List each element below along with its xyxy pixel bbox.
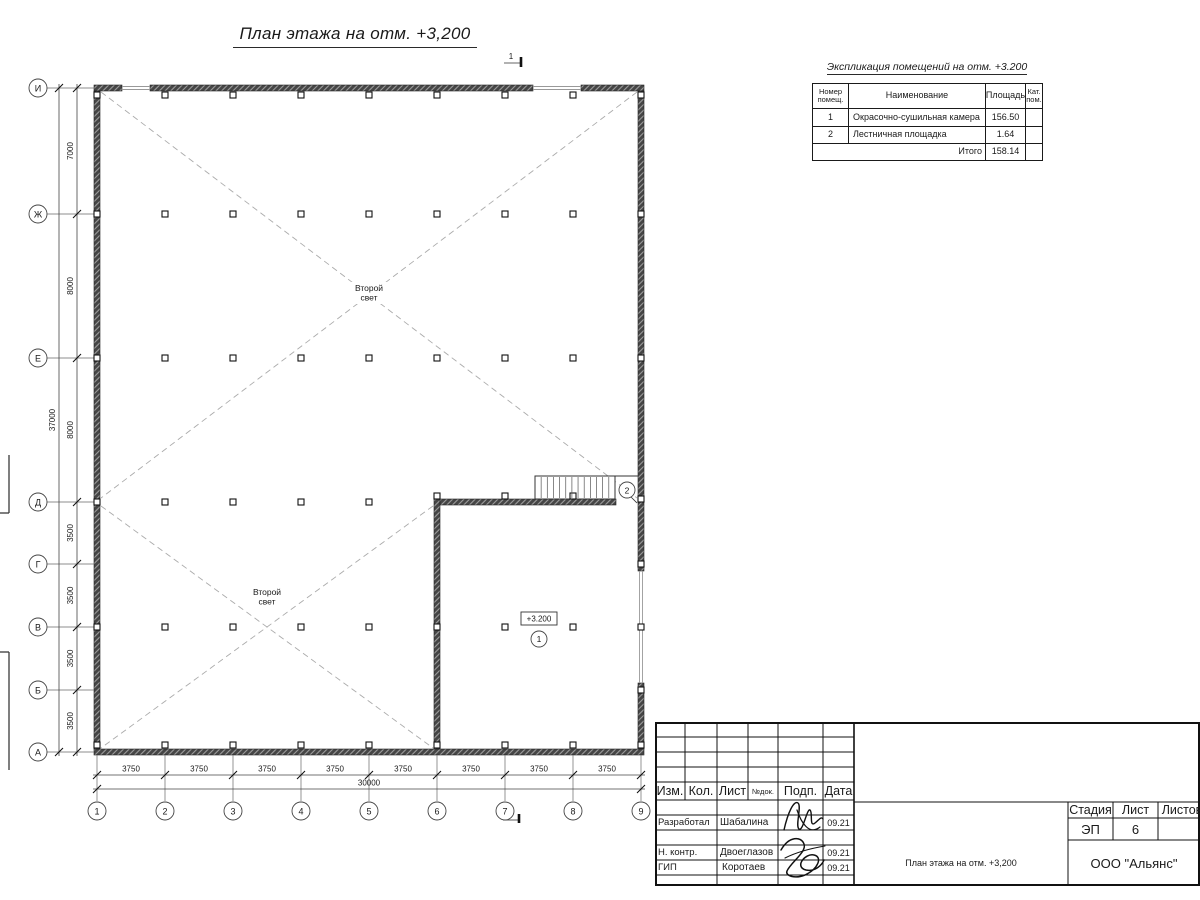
explication-title: Экспликация помещений на отм. +3.200 — [812, 57, 1042, 75]
dim-value: 3750 — [258, 765, 276, 774]
column-marker — [570, 211, 576, 217]
column-marker — [298, 742, 304, 748]
column-marker — [366, 211, 372, 217]
explication-total-area: 158.14 — [986, 144, 1026, 160]
dim-value: 3750 — [598, 765, 616, 774]
column-marker — [366, 742, 372, 748]
dim-value: 3750 — [394, 765, 412, 774]
column-marker — [434, 493, 440, 499]
section-mark-top-label: 1 — [509, 52, 514, 61]
column-marker — [298, 355, 304, 361]
explication-cell-name: Лестничная площадка — [849, 127, 986, 144]
tb-name-1: Шабалина — [720, 815, 777, 830]
elevation-mark-label: +3.200 — [527, 615, 552, 624]
column-marker — [638, 561, 644, 567]
axis-number: 6 — [434, 807, 439, 817]
column-marker — [94, 499, 100, 505]
column-marker — [502, 742, 508, 748]
column-marker — [638, 687, 644, 693]
axis-letter: Д — [35, 498, 41, 508]
explication-cell-area: 1.64 — [986, 127, 1026, 144]
axis-letter: И — [35, 84, 41, 94]
axis-letter: В — [35, 623, 41, 633]
column-marker — [162, 624, 168, 630]
explication-col-cat: Кат. пом. — [1026, 84, 1042, 109]
column-marker — [162, 499, 168, 505]
column-marker — [162, 92, 168, 98]
dim-total-value: 30000 — [358, 779, 381, 788]
column-marker — [366, 355, 372, 361]
page-title-text: План этажа на отм. +3,200 — [233, 24, 476, 48]
column-marker — [298, 624, 304, 630]
column-marker — [434, 624, 440, 630]
signature-2 — [777, 834, 827, 882]
dim-value: 7000 — [66, 142, 75, 160]
dim-total-value: 37000 — [48, 408, 57, 431]
column-marker — [366, 624, 372, 630]
dim-value: 3750 — [462, 765, 480, 774]
column-marker — [638, 742, 644, 748]
column-marker — [502, 355, 508, 361]
column-marker — [638, 211, 644, 217]
tb-date-3: 09.21 — [823, 860, 854, 875]
explication-col-name: Наименование — [849, 84, 986, 109]
column-marker — [570, 92, 576, 98]
room2-number: 2 — [625, 486, 630, 496]
axis-number: 4 — [298, 807, 303, 817]
column-marker — [230, 499, 236, 505]
tb-role-3: ГИП — [658, 860, 716, 875]
tb-col-kol: Кол. — [685, 782, 717, 800]
dim-value: 3500 — [66, 586, 75, 604]
tb-date-1: 09.21 — [823, 815, 854, 830]
column-marker — [366, 92, 372, 98]
tb-sheets-total — [1158, 818, 1200, 840]
tb-col-ndok: №док. — [748, 782, 778, 800]
axis-number: 3 — [230, 807, 235, 817]
tb-stage-value: ЭП — [1068, 818, 1113, 840]
column-marker — [434, 742, 440, 748]
tb-role-2: Н. контр. — [658, 845, 716, 860]
column-marker — [434, 355, 440, 361]
explication-col-area: Площадь — [986, 84, 1026, 109]
second-light-label: свет — [360, 293, 377, 303]
tb-company-name: ООО "Альянс" — [1068, 840, 1200, 886]
explication-cell-cat — [1026, 109, 1042, 127]
column-marker — [298, 92, 304, 98]
dim-value: 3750 — [530, 765, 548, 774]
explication-total-label: Итого — [813, 144, 986, 160]
explication-cell-cat — [1026, 127, 1042, 144]
drawing-sheet: +3.200 1 2 1 1 1234567893750375037503750… — [0, 0, 1200, 900]
section-mark-top: 1 — [504, 52, 521, 67]
sheet-fold-marks — [0, 455, 9, 770]
column-marker — [94, 624, 100, 630]
column-marker — [162, 355, 168, 361]
tb-col-data: Дата — [823, 782, 854, 800]
axis-letter: Ж — [34, 210, 43, 220]
column-marker — [502, 493, 508, 499]
tb-col-list: Лист — [717, 782, 748, 800]
axis-number: 2 — [162, 807, 167, 817]
column-marker — [502, 211, 508, 217]
axis-letter: Г — [36, 560, 41, 570]
column-marker — [230, 355, 236, 361]
explication-col-num: Номер помещ. — [813, 84, 849, 109]
tb-stage-label: Стадия — [1068, 802, 1113, 818]
tb-date-2: 09.21 — [823, 845, 854, 860]
column-marker — [162, 211, 168, 217]
room2-leader-line — [631, 497, 637, 503]
column-marker — [638, 355, 644, 361]
exterior-walls — [94, 85, 644, 755]
dim-value: 3750 — [122, 765, 140, 774]
tb-name-2: Двоеглазов — [720, 845, 777, 860]
dim-value: 3750 — [326, 765, 344, 774]
column-marker — [570, 493, 576, 499]
tb-sheets-label: Листов — [1158, 802, 1200, 818]
dim-value: 3750 — [190, 765, 208, 774]
axis-number: 8 — [570, 807, 575, 817]
column-marker — [230, 624, 236, 630]
column-marker — [638, 92, 644, 98]
column-marker — [570, 355, 576, 361]
column-marker — [230, 92, 236, 98]
second-light-label: Второй — [355, 283, 383, 293]
column-marker — [366, 499, 372, 505]
column-marker — [94, 92, 100, 98]
column-marker — [570, 742, 576, 748]
axis-letter: А — [35, 748, 41, 758]
axis-number: 7 — [502, 807, 507, 817]
second-light-cross-lower — [101, 506, 433, 748]
column-marker — [434, 92, 440, 98]
column-marker — [502, 624, 508, 630]
dim-value: 8000 — [66, 421, 75, 439]
explication-cell-num: 1 — [813, 109, 849, 127]
axis-number: 9 — [638, 807, 643, 817]
tb-name-3: Коротаев — [722, 860, 779, 875]
column-marker — [94, 355, 100, 361]
column-marker — [94, 742, 100, 748]
tb-col-izm: Изм. — [655, 782, 685, 800]
window-lines — [122, 87, 643, 684]
dim-value: 3500 — [66, 524, 75, 542]
explication-table: Номер помещ. Наименование Площадь Кат. п… — [812, 83, 1043, 161]
explication-cell-area: 156.50 — [986, 109, 1026, 127]
column-marker — [502, 92, 508, 98]
axis-number: 5 — [366, 807, 371, 817]
column-marker — [162, 742, 168, 748]
column-marker — [570, 624, 576, 630]
explication-cell-name: Окрасочно-сушильная камера — [849, 109, 986, 127]
tb-sheet-number: 6 — [1113, 818, 1158, 840]
column-marker — [434, 211, 440, 217]
room1-number: 1 — [537, 634, 542, 644]
explication-total-cat — [1026, 144, 1042, 160]
page-title: План этажа на отм. +3,200 — [215, 24, 495, 48]
tb-doc-name: План этажа на отм. +3,200 — [856, 840, 1066, 886]
column-marker — [638, 624, 644, 630]
explication-cell-num: 2 — [813, 127, 849, 144]
column-marker — [94, 211, 100, 217]
second-light-label: Второй — [253, 587, 281, 597]
dim-value: 3500 — [66, 649, 75, 667]
column-marker — [638, 496, 644, 502]
column-marker — [298, 211, 304, 217]
tb-sheet-label: Лист — [1113, 802, 1158, 818]
column-marker — [230, 211, 236, 217]
axis-letter: Б — [35, 686, 41, 696]
second-light-label: свет — [258, 597, 275, 607]
column-marker — [298, 499, 304, 505]
axis-letter: Е — [35, 354, 41, 364]
tb-role-1: Разработал — [658, 815, 716, 830]
dim-value: 8000 — [66, 277, 75, 295]
column-marker — [230, 742, 236, 748]
explication-title-text: Экспликация помещений на отм. +3.200 — [827, 61, 1027, 75]
axis-number: 1 — [94, 807, 99, 817]
dim-value: 3500 — [66, 712, 75, 730]
